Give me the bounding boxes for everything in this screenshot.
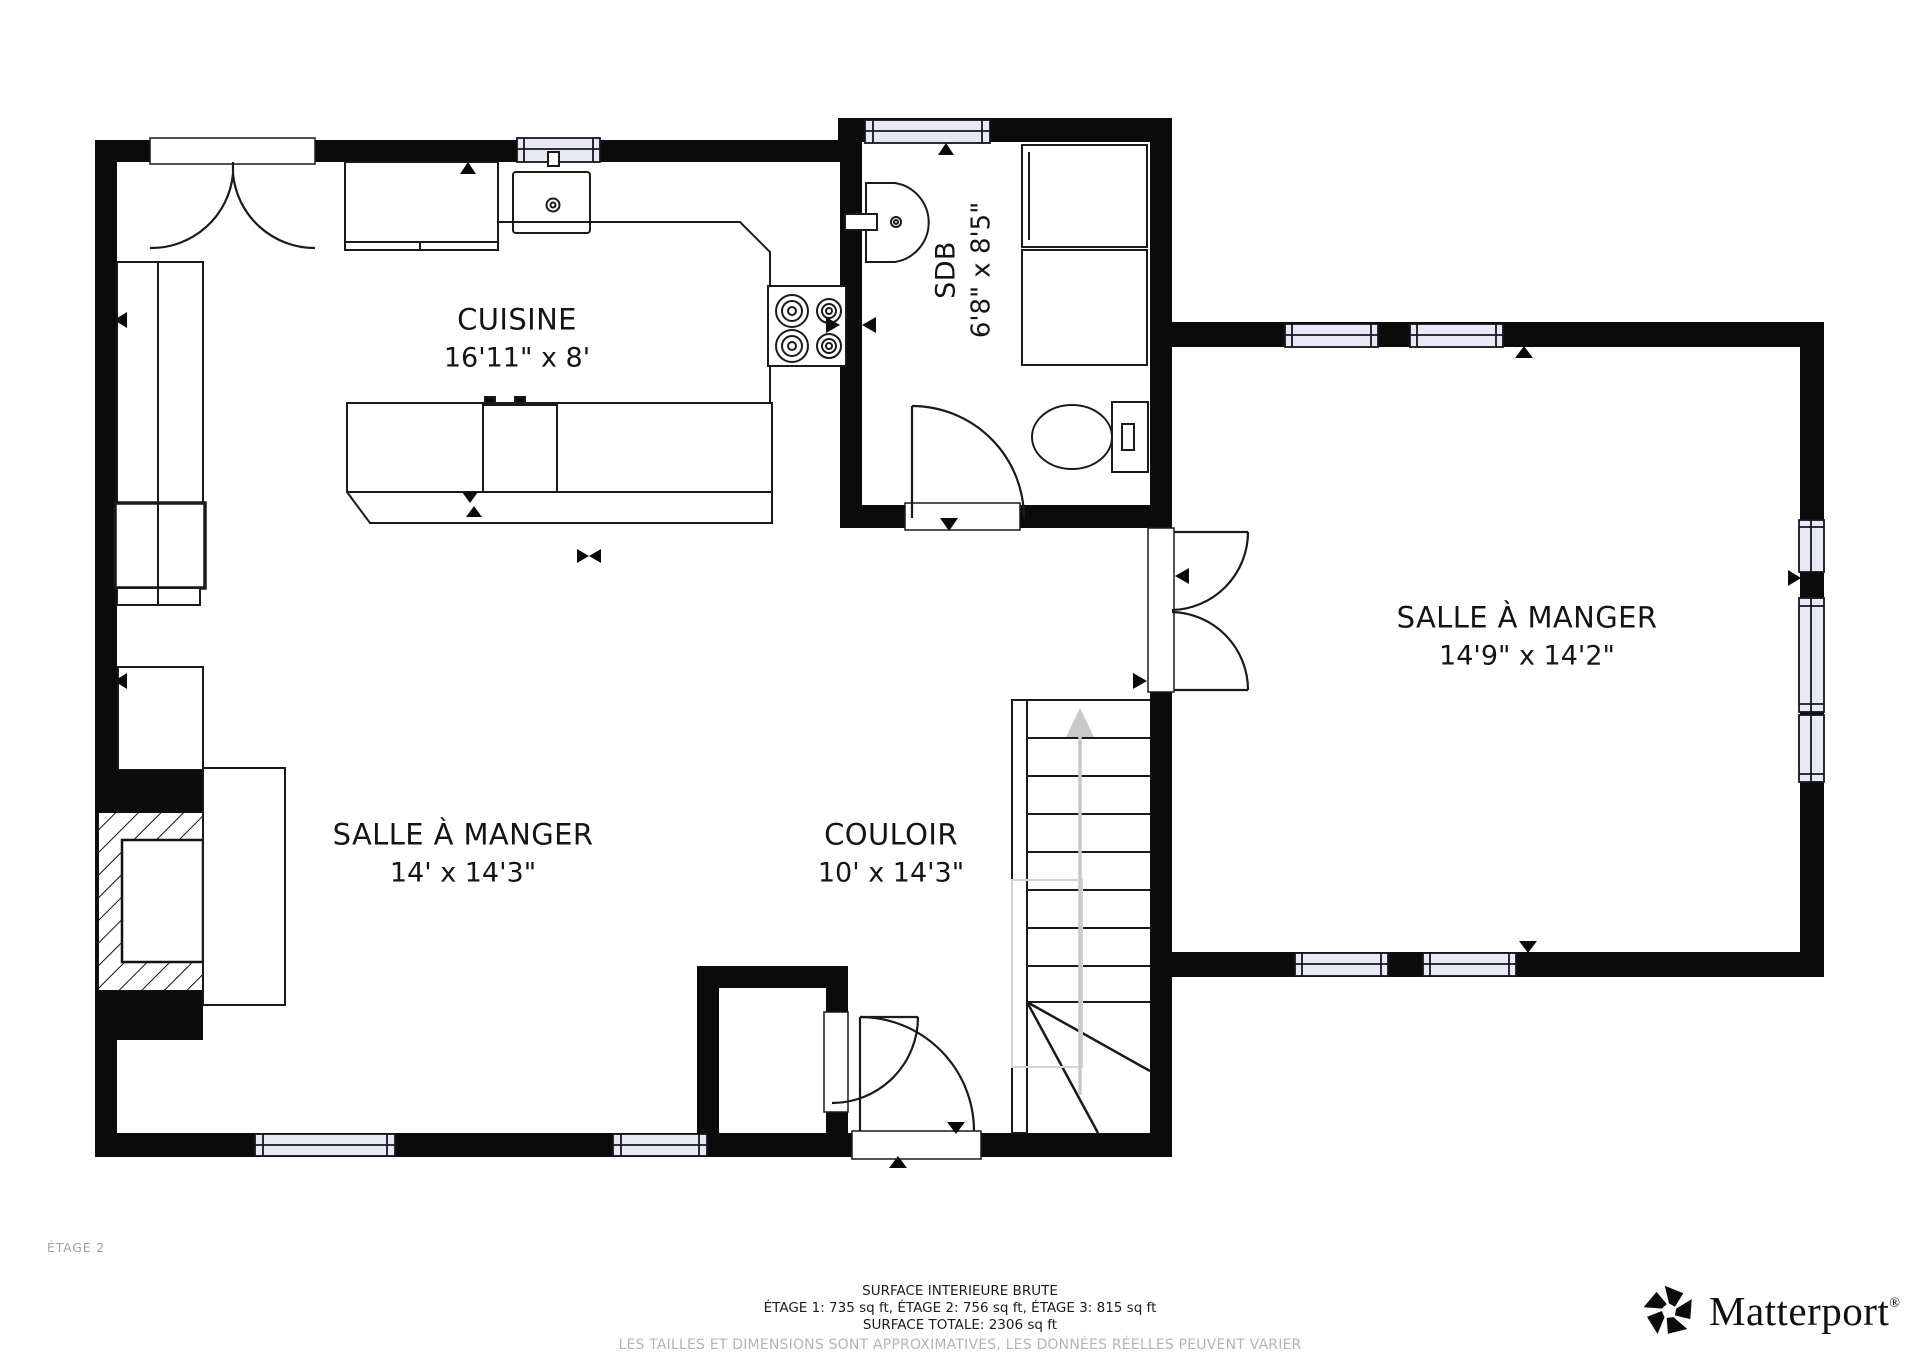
room-label-cuisine: CUISINE 16'11" x 8': [444, 299, 590, 376]
room-dims: 10' x 14'3": [818, 854, 964, 891]
room-dims: 14'9" x 14'2": [1397, 637, 1658, 674]
marker-rightroom-down: [1519, 941, 1537, 953]
marker-center-a: [577, 549, 589, 563]
window-sdb-top: [865, 120, 990, 143]
matterport-logo-icon: [1642, 1284, 1696, 1338]
shower-icon: [1022, 145, 1147, 365]
sdb-door-opening: [905, 503, 1020, 530]
room-name: SALLE À MANGER: [333, 814, 594, 854]
kitchen-fixtures: [345, 152, 846, 523]
room-name: COULOIR: [818, 814, 964, 854]
window-right-wall-2: [1799, 598, 1824, 712]
marker-couloir-right: [1133, 673, 1147, 689]
matterport-logo: Matterport®: [1642, 1284, 1900, 1338]
armchair-icon: [118, 667, 203, 770]
marker-center-b: [589, 549, 601, 563]
matterport-wordmark: Matterport®: [1709, 1287, 1900, 1335]
wall-closet-inner: [719, 988, 826, 1133]
surface-title: SURFACE INTERIEURE BRUTE: [618, 1283, 1301, 1300]
bottom-door-opening: [852, 1131, 981, 1159]
couloir-double-door-icon: [1172, 532, 1248, 690]
toilet-icon: [1032, 402, 1148, 472]
window-rightroom-top-1: [1285, 324, 1378, 347]
kitchen-island-icon: [347, 397, 772, 523]
surface-disclaimer: LES TAILLES ET DIMENSIONS SONT APPROXIMA…: [618, 1337, 1301, 1354]
window-bottom-left-2: [613, 1134, 707, 1156]
cabinet-icon: [345, 162, 498, 250]
cabinet-tall-icon: [115, 262, 205, 605]
floor-label: ÉTAGE 2: [47, 1240, 105, 1255]
stairs-up-icon: [1012, 700, 1150, 1133]
room-label-salle-droite: SALLE À MANGER 14'9" x 14'2": [1397, 597, 1658, 674]
fireplace-icon: [95, 768, 285, 1040]
closet-door-icon: [832, 1017, 974, 1131]
window-rightroom-bottom-2: [1423, 953, 1516, 976]
room-name: CUISINE: [444, 299, 590, 339]
marker-rightroom-up: [1515, 346, 1533, 358]
window-right-wall-1: [1799, 520, 1824, 572]
marker-sdb-up: [938, 143, 954, 155]
room-label-salle-gauche: SALLE À MANGER 14' x 14'3": [333, 814, 594, 891]
room-name: SDB: [927, 202, 964, 338]
marker-couloir-left: [1175, 568, 1189, 584]
window-bottom-left-1: [255, 1134, 395, 1156]
closet-door-opening: [824, 1012, 848, 1112]
couloir-door-opening: [1148, 528, 1174, 692]
entry-double-door-icon: [150, 162, 315, 248]
surface-summary: SURFACE INTERIEURE BRUTE ÉTAGE 1: 735 sq…: [618, 1283, 1301, 1354]
surface-total: SURFACE TOTALE: 2306 sq ft: [618, 1317, 1301, 1334]
registered-mark: ®: [1889, 1296, 1900, 1311]
entry-door-opening: [150, 138, 315, 164]
room-label-couloir: COULOIR 10' x 14'3": [818, 814, 964, 891]
room-dims: 6'8" x 8'5": [965, 202, 1001, 338]
hearth: [203, 768, 285, 1005]
surface-areas: ÉTAGE 1: 735 sq ft, ÉTAGE 2: 756 sq ft, …: [618, 1300, 1301, 1317]
room-dims: 16'11" x 8': [444, 339, 590, 376]
marker-wall-left: [862, 317, 876, 333]
window-rightroom-top-2: [1410, 324, 1503, 347]
room-dims: 14' x 14'3": [333, 854, 594, 891]
room-name: SALLE À MANGER: [1397, 597, 1658, 637]
dishwasher-icon: [483, 405, 557, 492]
sdb-door-icon: [912, 406, 1024, 518]
floorplan-canvas: CUISINE 16'11" x 8' SDB 6'8" x 8'5" SALL…: [0, 0, 1920, 1358]
window-rightroom-bottom-1: [1295, 953, 1388, 976]
room-label-sdb: SDB 6'8" x 8'5": [927, 202, 1000, 338]
furniture: [115, 262, 205, 770]
window-right-wall-3: [1799, 715, 1824, 782]
kitchen-sink-icon: [513, 152, 590, 233]
